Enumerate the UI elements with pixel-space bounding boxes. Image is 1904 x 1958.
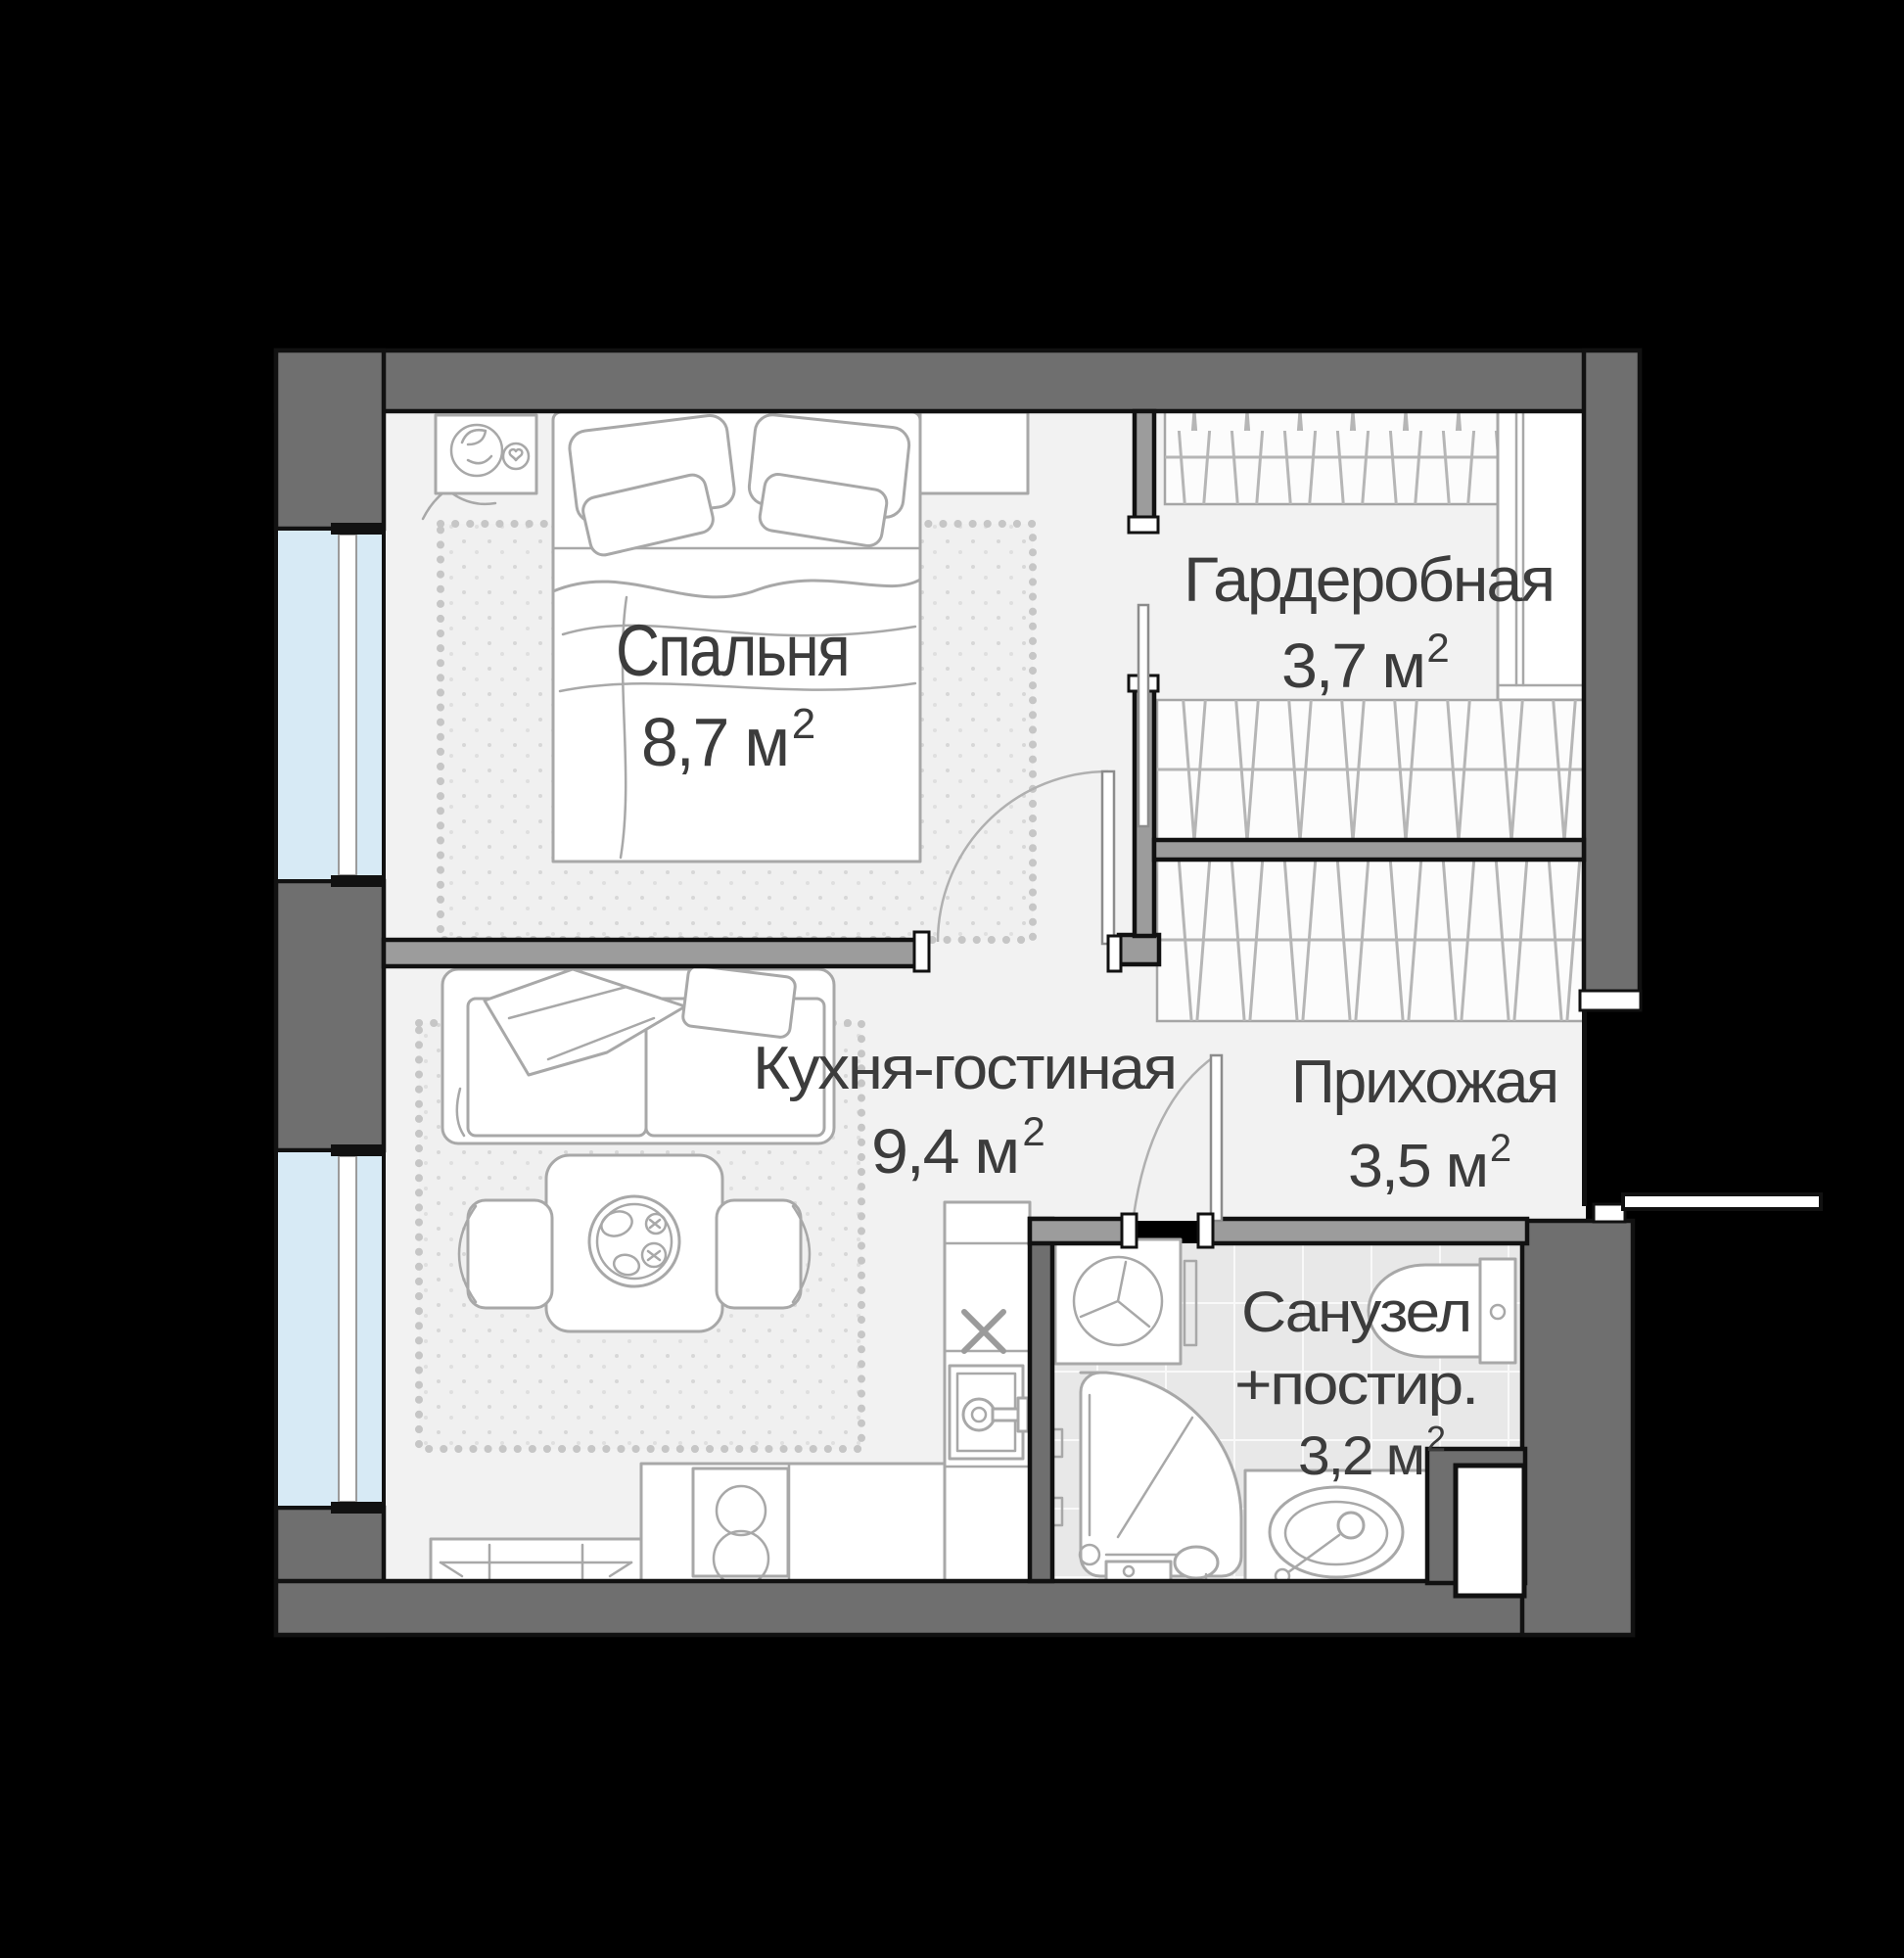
stove — [693, 1468, 788, 1586]
entry-floor-edge — [1582, 1010, 1587, 1206]
room-area-sup-bathroom: 2 — [1426, 1419, 1445, 1459]
tv-bench — [431, 1539, 641, 1582]
room-label-bathroom-line1: Санузел — [1241, 1281, 1470, 1344]
room-area-sup-kitchen: 2 — [1022, 1108, 1044, 1154]
room-label-bathroom-line2: +постир. — [1234, 1353, 1477, 1417]
wardrobe-rack-middle — [1157, 700, 1584, 840]
pillow — [682, 965, 797, 1039]
room-label-bedroom: Спальня — [616, 610, 849, 691]
dining-table — [546, 1155, 722, 1331]
wall-bedroom-partition — [384, 940, 921, 966]
wall-wardrobe-divider — [1154, 840, 1584, 860]
wardrobe-rack-top — [1165, 411, 1498, 504]
wall-bathroom-left — [1030, 1219, 1052, 1581]
chair-left — [459, 1200, 552, 1308]
wall-left-middle — [276, 881, 384, 1150]
bathroom-sink — [1245, 1470, 1427, 1583]
floor-plan-svg: Спальня 8,7 м 2 Гардеробная 3,7 м 2 Кухн… — [0, 0, 1904, 1958]
window-bedroom — [276, 523, 384, 887]
room-label-wardrobe: Гардеробная — [1184, 544, 1554, 615]
wall-wardrobe-partition-a — [1135, 411, 1154, 521]
room-area-kitchen: 9,4 м — [871, 1116, 1018, 1187]
floor-plan-page: Спальня 8,7 м 2 Гардеробная 3,7 м 2 Кухн… — [0, 0, 1904, 1958]
entrance-door-leaf — [1623, 1194, 1821, 1209]
room-label-hallway: Прихожая — [1291, 1049, 1557, 1116]
hallway-closet-rack — [1157, 860, 1584, 1021]
room-area-hallway: 3,5 м — [1348, 1133, 1487, 1200]
door-hinge-stub — [1119, 935, 1159, 964]
wall-bathroom-top-right — [1212, 1219, 1527, 1243]
wall-right-lower — [1522, 1221, 1633, 1635]
washing-machine — [1055, 1239, 1196, 1364]
kitchen-sink — [950, 1366, 1028, 1459]
vent-shaft — [1456, 1466, 1524, 1596]
plate-of-food — [589, 1196, 679, 1286]
room-area-wardrobe: 3,7 м — [1281, 630, 1424, 701]
room-area-sup-wardrobe: 2 — [1426, 625, 1448, 671]
room-area-bedroom: 8,7 м — [641, 704, 788, 780]
bedside-shelf — [920, 412, 1028, 493]
window-kitchen — [276, 1144, 384, 1514]
wall-bathroom-top-left — [1030, 1219, 1126, 1243]
room-area-sup-bedroom: 2 — [792, 700, 814, 748]
wall-bottom — [276, 1581, 1633, 1635]
wall-left-top — [276, 350, 384, 529]
faucet-icon — [963, 1399, 995, 1430]
room-label-kitchen: Кухня-гостиная — [753, 1035, 1176, 1102]
entrance-door — [1580, 991, 1821, 1222]
wardrobe-units — [1157, 411, 1584, 1021]
wall-top — [276, 350, 1640, 411]
wall-right-upper — [1584, 350, 1640, 994]
chair-right — [717, 1200, 810, 1308]
room-area-bathroom: 3,2 м — [1298, 1424, 1423, 1486]
room-area-sup-hallway: 2 — [1490, 1127, 1510, 1170]
